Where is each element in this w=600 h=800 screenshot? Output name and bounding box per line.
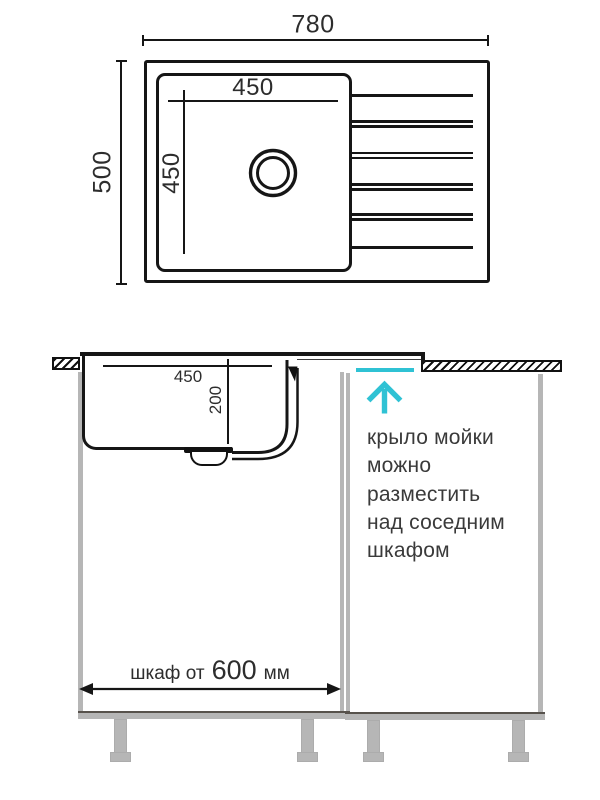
sink-installation-diagram: 780 500 450 450	[0, 0, 600, 800]
countertop-right-hatch	[421, 360, 562, 373]
dim-500-tick-bottom	[116, 283, 127, 285]
groove-line	[352, 183, 473, 185]
sink-rim-step	[421, 356, 425, 363]
up-arrow-icon	[360, 378, 408, 418]
groove-line	[352, 152, 473, 154]
dim-780-label: 780	[291, 11, 334, 40]
cabinet-leg	[114, 719, 127, 753]
groove-line	[352, 94, 473, 97]
note-line: шкафом	[367, 537, 505, 565]
cabinet-mid-wall-a	[340, 372, 345, 712]
dim-780-tick-right	[487, 35, 489, 46]
dim-200-line	[227, 359, 229, 444]
groove-line	[352, 218, 473, 220]
wing-underline	[297, 359, 421, 361]
cabinet-leg-foot	[508, 752, 529, 762]
note-line: над соседним	[367, 509, 505, 537]
dim-500-label: 500	[89, 150, 118, 193]
drainboard-grooves	[352, 0, 473, 300]
groove-line	[352, 157, 473, 159]
arrowhead-left	[79, 683, 93, 695]
cabinet-leg	[367, 720, 380, 754]
groove-line	[352, 120, 473, 122]
note-line: разместить	[367, 481, 505, 509]
pipe-inner-line	[232, 360, 287, 453]
note-text: крыло мойки можно разместить над соседни…	[367, 424, 505, 565]
dim-450d-label: 450	[158, 152, 186, 194]
groove-line	[352, 246, 473, 249]
cabinet-leg	[512, 720, 525, 754]
dim-500-line	[120, 60, 122, 285]
cyan-highlight-line	[356, 368, 414, 372]
cabinet-leg-foot	[297, 752, 318, 762]
groove-line	[352, 213, 473, 215]
drain-circle-inner	[258, 158, 289, 189]
cabinet-leg-foot	[363, 752, 384, 762]
cabinet-left-bottom	[78, 711, 350, 719]
drain-circle	[245, 145, 301, 201]
sink-rim	[80, 352, 425, 356]
cabinet-mid-wall-b	[346, 373, 351, 713]
countertop-left-hatch	[52, 357, 80, 370]
rim-wedge	[288, 367, 298, 382]
groove-line	[352, 188, 473, 190]
overflow-pipe	[225, 358, 305, 464]
dim-450s-label: 450	[174, 367, 202, 387]
dim-600-arrow	[76, 680, 346, 698]
dim-450w-label: 450	[232, 74, 274, 102]
arrowhead-right	[327, 683, 341, 695]
note-line: можно	[367, 452, 505, 480]
groove-line	[352, 125, 473, 127]
cabinet-right-wall	[538, 374, 543, 712]
cabinet-leg	[301, 719, 314, 753]
dim-200-label: 200	[206, 386, 226, 414]
note-line: крыло мойки	[367, 424, 505, 452]
dim-600-label: шкаф от 600 мм	[84, 655, 336, 681]
drain-cup	[190, 452, 228, 466]
cabinet-right-bottom	[345, 712, 545, 720]
dim-780-tick-left	[142, 35, 144, 46]
dim-500-tick-top	[116, 60, 127, 62]
cabinet-leg-foot	[110, 752, 131, 762]
